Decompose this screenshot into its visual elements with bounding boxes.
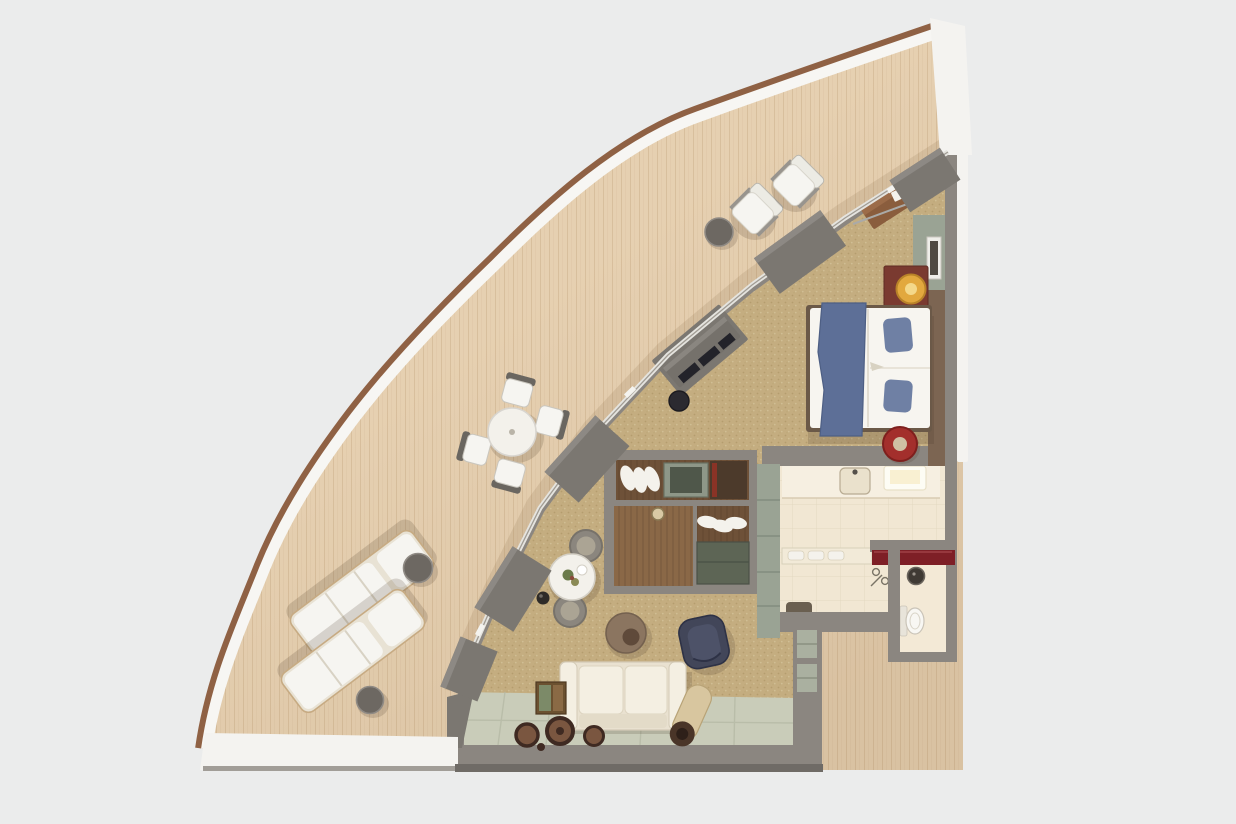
tall-cabinet-column (757, 464, 780, 638)
wardrobe-with-cabinet (696, 506, 749, 584)
exterior-wall-strip (957, 150, 968, 462)
toilet-room-left-wall (888, 548, 900, 662)
sphere-highlight (539, 594, 543, 598)
decorative-sphere (537, 592, 550, 605)
nightstand (884, 266, 928, 308)
pillow-1 (883, 317, 914, 353)
blue-throw (818, 303, 866, 436)
screenshot-canvas (0, 0, 1236, 824)
sink-faucet (852, 469, 857, 474)
console-table-art (536, 682, 566, 714)
rolled-towels (788, 551, 844, 560)
bedroom-bathroom-wall (762, 446, 957, 466)
bottom-shadow-line-left (203, 766, 459, 771)
suite-bottom-edge (455, 764, 823, 772)
double-bed (806, 303, 934, 444)
art-frame-inner (930, 241, 938, 275)
basin-drain (912, 572, 915, 575)
table-plate (577, 565, 587, 575)
pillow-2 (883, 379, 913, 413)
black-stool (669, 391, 689, 411)
wardrobe-corridor (614, 506, 693, 586)
sofa (560, 662, 692, 734)
wardrobe-open (616, 460, 749, 500)
mirror-glow (890, 470, 920, 484)
suite-floor-plan-image (0, 0, 1236, 824)
table-centerpiece (509, 429, 515, 435)
pendant-light (652, 508, 664, 520)
balcony-bottom-band (200, 733, 458, 770)
wall-hung-basin (908, 568, 925, 585)
bathroom-bottom-wall (779, 612, 893, 632)
toilet (900, 606, 924, 636)
